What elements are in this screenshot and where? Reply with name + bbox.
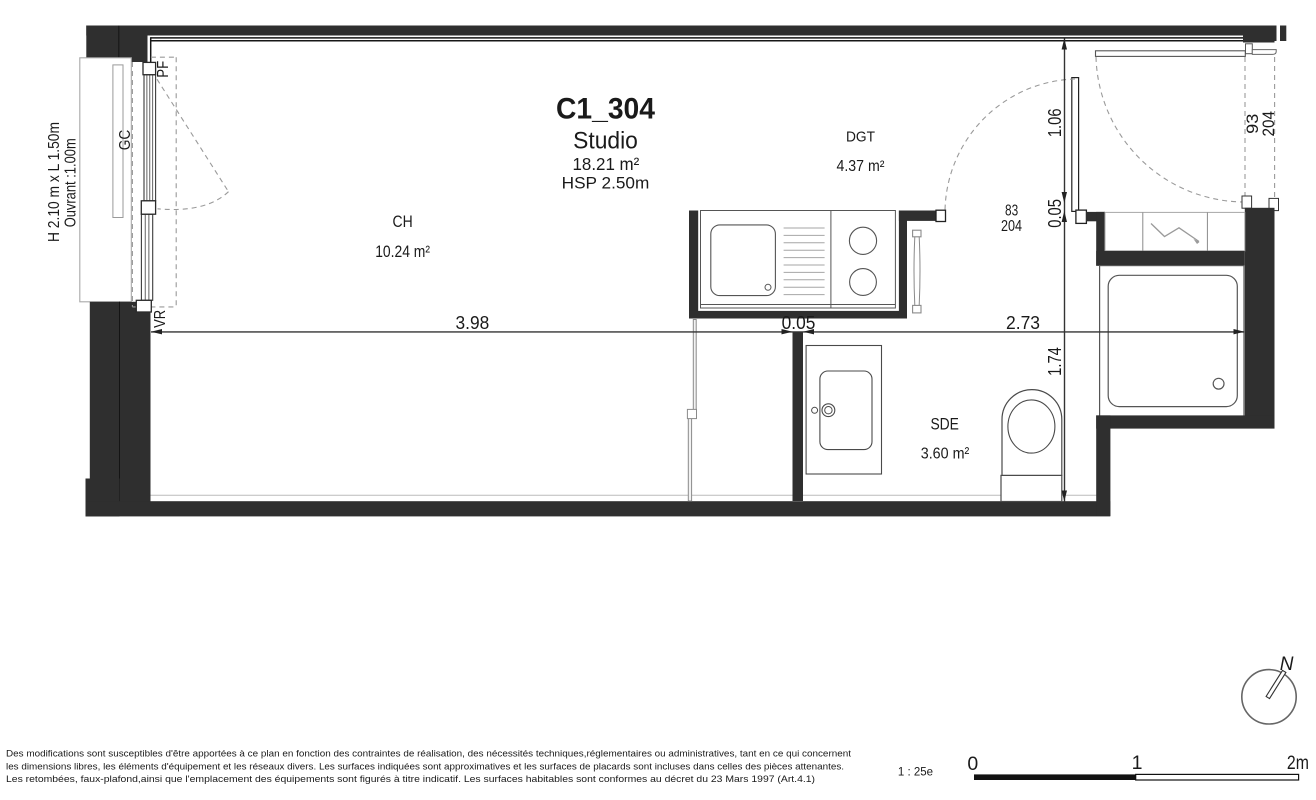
svg-text:N: N — [1280, 654, 1294, 675]
svg-text:0: 0 — [967, 753, 978, 775]
svg-text:204: 204 — [1001, 218, 1022, 235]
svg-text:1.06: 1.06 — [1045, 108, 1065, 137]
svg-text:DGT: DGT — [846, 130, 875, 146]
svg-text:2.73: 2.73 — [1006, 313, 1040, 333]
svg-text:Les retombées, faux-plafond,ai: Les retombées, faux-plafond,ainsi que l'… — [6, 774, 815, 785]
svg-text:18.21 m²: 18.21 m² — [573, 154, 640, 174]
svg-text:GC: GC — [117, 130, 134, 151]
svg-text:H 2.10 m x L 1.50m: H 2.10 m x L 1.50m — [46, 122, 63, 242]
svg-text:Ouvrant :1.00m: Ouvrant :1.00m — [63, 138, 80, 227]
svg-text:10.24 m²: 10.24 m² — [375, 243, 430, 261]
svg-text:4.37 m²: 4.37 m² — [837, 158, 885, 175]
svg-text:1 : 25e: 1 : 25e — [898, 767, 933, 779]
svg-text:1.74: 1.74 — [1045, 347, 1065, 376]
svg-text:PF: PF — [155, 61, 172, 78]
svg-text:les dimensions libres, les élé: les dimensions libres, les éléments d'éq… — [6, 761, 844, 772]
svg-text:HSP 2.50m: HSP 2.50m — [562, 174, 650, 193]
svg-text:204: 204 — [1260, 111, 1278, 137]
svg-text:3.98: 3.98 — [456, 313, 490, 333]
svg-text:C1_304: C1_304 — [556, 92, 655, 125]
svg-text:SDE: SDE — [930, 415, 959, 434]
svg-text:Studio: Studio — [573, 127, 638, 154]
svg-text:3.60 m²: 3.60 m² — [921, 446, 970, 463]
svg-text:0.05: 0.05 — [782, 313, 816, 333]
svg-text:0.05: 0.05 — [1045, 199, 1065, 228]
svg-text:CH: CH — [393, 212, 413, 231]
svg-text:2m: 2m — [1287, 752, 1309, 774]
svg-text:Des modifications sont suscept: Des modifications sont susceptibles d'êt… — [6, 749, 851, 760]
svg-text:1: 1 — [1132, 752, 1143, 774]
svg-text:VR: VR — [152, 310, 169, 328]
svg-text:83: 83 — [1005, 202, 1018, 219]
